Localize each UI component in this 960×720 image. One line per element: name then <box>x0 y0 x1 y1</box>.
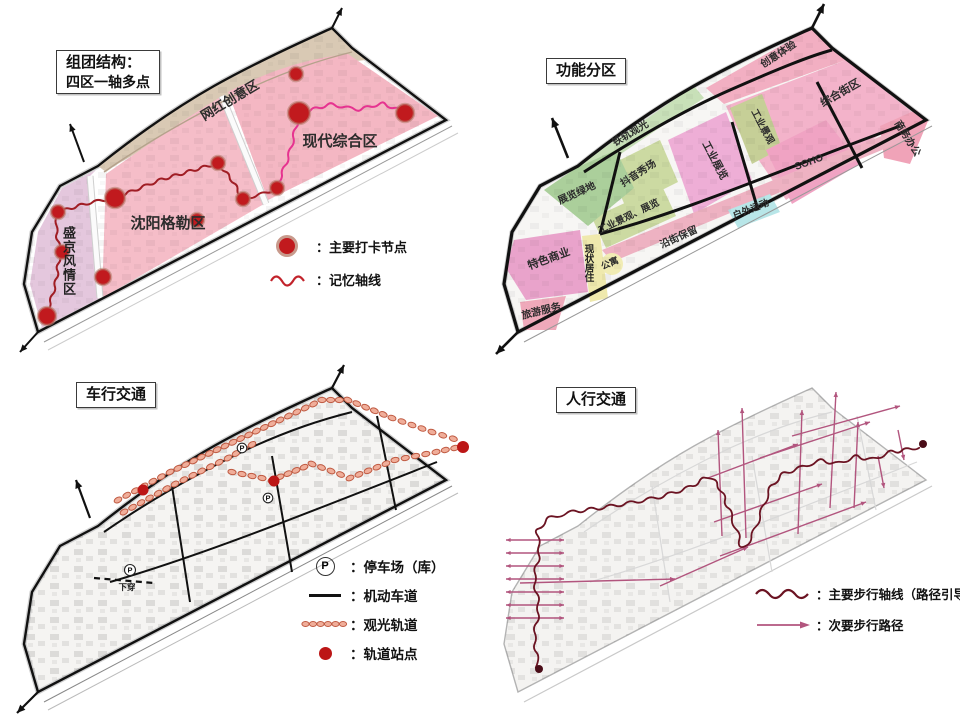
legend-label: ：主要步行轴线（路径引导） <box>816 584 960 603</box>
functional-zoning-title: 功能分区 <box>546 58 626 84</box>
panel-pedestrian-traffic: 人行交通 ：主要步行轴线（路径引导） ：次要步行路径 <box>480 360 960 720</box>
dark-wavy-icon <box>752 586 816 602</box>
title-line-1: 组团结构： <box>66 53 150 73</box>
wavy-line-icon <box>266 272 316 288</box>
vehicular-traffic-title: 车行交通 <box>76 382 156 408</box>
legend-row: ：记忆轴线 <box>266 270 407 289</box>
svg-text:P: P <box>239 444 244 453</box>
legend-row: ：主要步行轴线（路径引导） <box>752 584 960 603</box>
pedestrian-traffic-legend: ：主要步行轴线（路径引导） ：次要步行路径 <box>752 584 960 634</box>
legend-label: ：观光轨道 <box>350 614 418 634</box>
red-dot-icon <box>300 647 350 660</box>
zone-label-xianzhuang-juzhu: 现状居住 <box>583 244 593 282</box>
black-line-icon <box>300 594 350 597</box>
legend-label: ：主要打卡节点 <box>316 237 407 256</box>
legend-row: ：主要打卡节点 <box>266 234 407 258</box>
group-structure-title: 组团结构： 四区一轴多点 <box>56 50 160 94</box>
legend-label: ：停车场（库） <box>350 556 445 576</box>
group-structure-legend: ：主要打卡节点 ：记忆轴线 <box>266 234 407 289</box>
legend-label: ：记忆轴线 <box>316 270 381 289</box>
pedestrian-traffic-title: 人行交通 <box>556 387 636 413</box>
functional-zoning-map: 铁轨观光 创意体验 综合街区 商务办公 SOHO 工业展览 工业景观 抖音秀场 … <box>480 0 960 360</box>
legend-row: P ：停车场（库） <box>300 556 445 576</box>
pedestrian-traffic-map <box>480 360 960 720</box>
zone-label-shengjing: 盛京风情区 <box>62 226 75 296</box>
pink-arrow-icon <box>752 617 816 633</box>
track-chain-icon <box>300 618 350 630</box>
legend-label: ：机动车道 <box>350 585 418 605</box>
legend-row: ：次要步行路径 <box>752 615 960 634</box>
legend-row: ：轨道站点 <box>300 643 445 663</box>
vehicular-traffic-legend: P ：停车场（库） ：机动车道 ：观光轨道 ：轨道站点 <box>300 556 445 663</box>
zone-label-xiandai: 现代综合区 <box>302 132 377 150</box>
legend-label: ：次要步行路径 <box>816 615 904 634</box>
legend-row: ：观光轨道 <box>300 614 445 634</box>
panel-functional-zoning: 铁轨观光 创意体验 综合街区 商务办公 SOHO 工业展览 工业景观 抖音秀场 … <box>480 0 960 360</box>
parking-p-icon: P <box>300 557 350 576</box>
svg-text:P: P <box>265 494 270 503</box>
legend-row: ：机动车道 <box>300 585 445 605</box>
panel-group-structure: 网红创意区 现代综合区 沈阳格勒区 盛京风情区 组团结构： 四区一轴多点 ：主要… <box>0 0 480 360</box>
zone-label-shenyang: 沈阳格勒区 <box>130 214 205 232</box>
svg-text:P: P <box>127 566 132 575</box>
title-line-2: 四区一轴多点 <box>66 73 150 91</box>
panel-vehicular-traffic: P P P 下穿 车行交通 P ：停车场（库） ：机动车道 <box>0 360 480 720</box>
legend-label: ：轨道站点 <box>350 643 418 663</box>
vehicular-traffic-map: P P P 下穿 <box>0 360 480 720</box>
node-dot-icon <box>266 234 316 258</box>
underpass-label: 下穿 <box>118 582 136 592</box>
